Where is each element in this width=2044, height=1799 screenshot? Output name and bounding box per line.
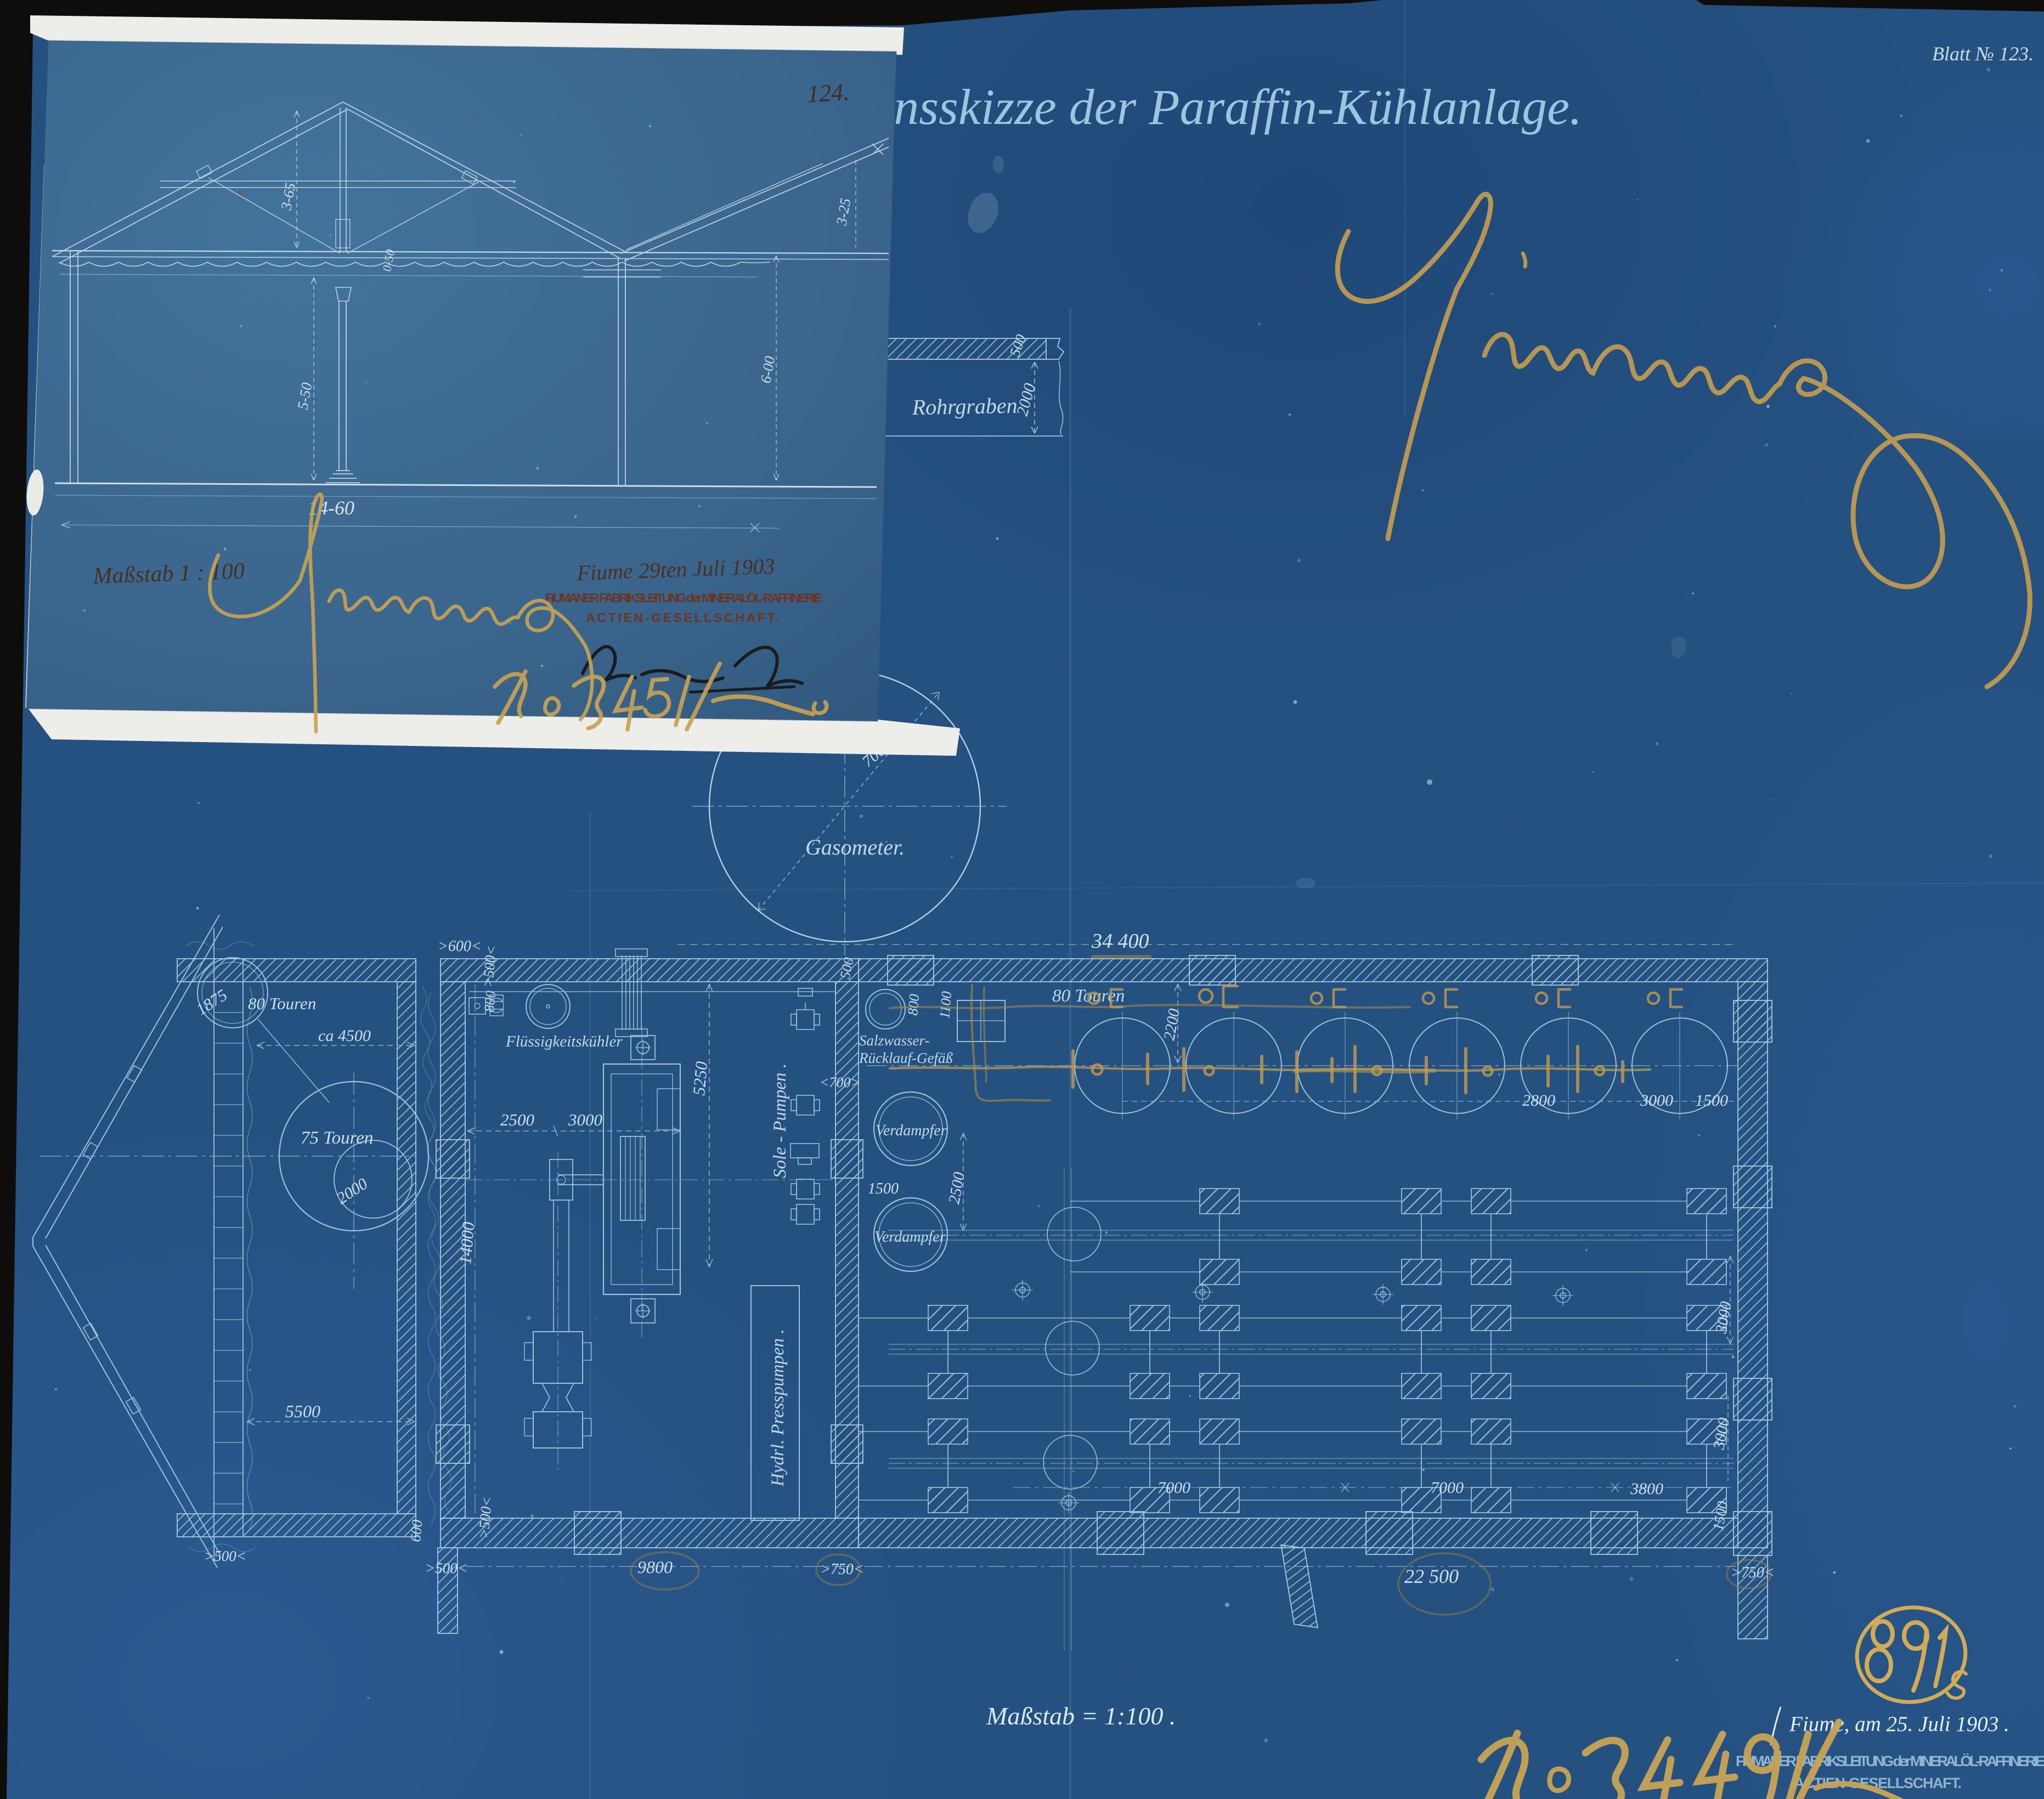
svg-text:FIUMANER FABRIKSLEITUNG der MI: FIUMANER FABRIKSLEITUNG der MINERALÖL-RA… (1736, 1753, 2044, 1769)
svg-text:Rücklauf-Gefäß: Rücklauf-Gefäß (859, 1050, 953, 1066)
svg-text:7000: 7000 (1431, 1479, 1464, 1497)
svg-text:FIUMANER FABRIKSLEITUNG der MI: FIUMANER FABRIKSLEITUNG der MINERALÖL-RA… (545, 591, 822, 605)
svg-text:1500: 1500 (868, 1180, 899, 1197)
svg-text:5500: 5500 (285, 1401, 320, 1421)
svg-text:2800: 2800 (1522, 1091, 1555, 1110)
svg-text:7000: 7000 (1157, 1479, 1190, 1497)
svg-text:1500: 1500 (1695, 1091, 1728, 1110)
svg-text:5250: 5250 (689, 1060, 711, 1096)
svg-text:80 Touren: 80 Touren (248, 994, 316, 1013)
svg-text:>600<: >600< (438, 938, 482, 955)
svg-text:Rohrgraben: Rohrgraben (911, 393, 1018, 420)
svg-text:Gasometer.: Gasometer. (805, 835, 905, 859)
svg-text:>500<: >500< (204, 1548, 246, 1564)
svg-text:ca 4500: ca 4500 (318, 1027, 371, 1045)
svg-text:3800: 3800 (1630, 1480, 1663, 1498)
svg-text:Sole - Pumpen .: Sole - Pumpen . (770, 1063, 790, 1178)
svg-text:34 400: 34 400 (1091, 930, 1149, 953)
svg-text:14000: 14000 (455, 1221, 478, 1265)
svg-text:Verdampfer: Verdampfer (876, 1122, 947, 1139)
svg-text:Hydrl. Presspumpen .: Hydrl. Presspumpen . (768, 1329, 788, 1487)
svg-text:Salzwasser-: Salzwasser- (859, 1032, 929, 1049)
svg-text:22 500: 22 500 (1404, 1565, 1459, 1587)
svg-text:>500<: >500< (425, 1560, 467, 1576)
svg-text:1100: 1100 (936, 991, 955, 1019)
svg-text:3000: 3000 (568, 1110, 603, 1129)
svg-text:Blatt № 123.: Blatt № 123. (1932, 43, 2034, 65)
svg-text:800: 800 (905, 993, 922, 1016)
svg-text:Maßstab = 1:100 .: Maßstab = 1:100 . (986, 1702, 1176, 1730)
svg-text:<700>: <700> (820, 1074, 860, 1090)
svg-text:Fiume, am 25. Juli 1903 .: Fiume, am 25. Juli 1903 . (1789, 1712, 2009, 1736)
svg-text:Verdampfer: Verdampfer (874, 1229, 946, 1246)
svg-text:124.: 124. (806, 78, 850, 108)
svg-text:75 Touren: 75 Touren (301, 1128, 373, 1148)
svg-text:3000: 3000 (1640, 1091, 1673, 1110)
svg-text:600: 600 (407, 1519, 425, 1542)
svg-text:Maßstab 1 : 100: Maßstab 1 : 100 (92, 558, 245, 589)
svg-text:2500: 2500 (500, 1110, 535, 1129)
svg-text:Flüssigkeitskühler: Flüssigkeitskühler (505, 1033, 623, 1050)
svg-text:9800: 9800 (637, 1557, 673, 1577)
